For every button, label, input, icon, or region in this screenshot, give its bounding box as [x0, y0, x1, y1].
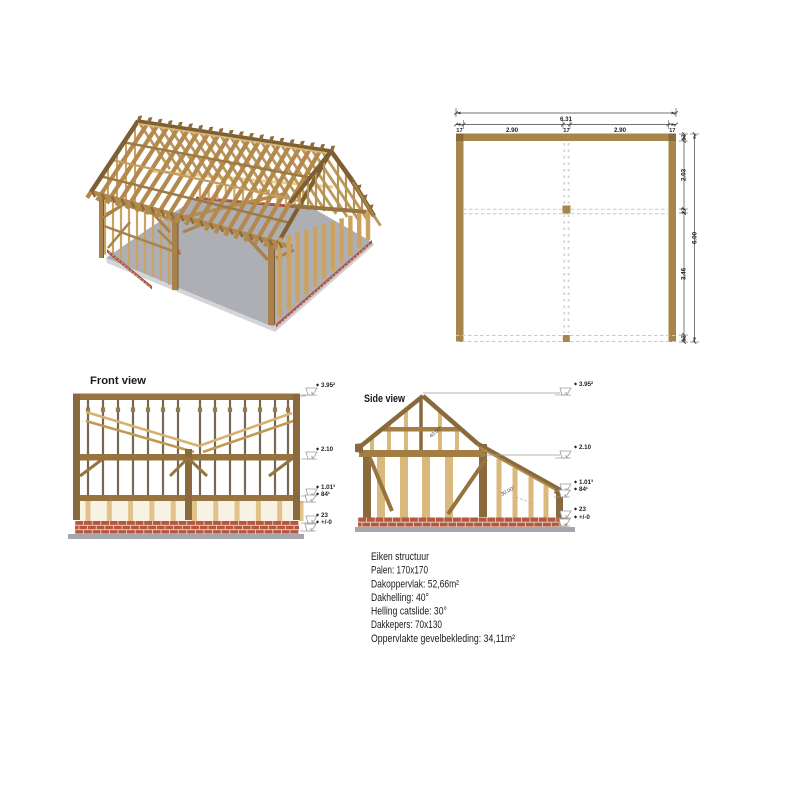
svg-text:2.90: 2.90 — [506, 127, 519, 134]
svg-text:Dakoppervlak: 52,66m²: Dakoppervlak: 52,66m² — [371, 578, 459, 590]
svg-text:6.31: 6.31 — [560, 116, 573, 123]
svg-text:23: 23 — [579, 506, 586, 513]
svg-text:3.95²: 3.95² — [579, 381, 593, 388]
svg-text:+/-0: +/-0 — [321, 519, 332, 526]
svg-text:84¹: 84¹ — [321, 491, 330, 498]
svg-text:Eiken structuur: Eiken structuur — [371, 551, 429, 563]
svg-text:17: 17 — [682, 335, 688, 341]
svg-text:Front view: Front view — [90, 375, 146, 387]
svg-text:2.03: 2.03 — [681, 168, 688, 181]
svg-text:23: 23 — [321, 512, 328, 519]
svg-text:17: 17 — [456, 128, 462, 134]
svg-text:3.46: 3.46 — [681, 267, 688, 280]
svg-text:2.10: 2.10 — [579, 444, 592, 451]
svg-text:1.01³: 1.01³ — [579, 479, 593, 486]
svg-text:17: 17 — [682, 134, 688, 140]
svg-text:17: 17 — [682, 208, 688, 214]
svg-text:Oppervlakte gevelbekleding: 34: Oppervlakte gevelbekleding: 34,11m² — [371, 633, 515, 645]
svg-text:Palen: 170x170: Palen: 170x170 — [371, 565, 428, 577]
svg-text:Side view: Side view — [364, 393, 405, 405]
svg-text:Helling catslide: 30°: Helling catslide: 30° — [371, 606, 447, 618]
svg-text:Dakkepers: 70x130: Dakkepers: 70x130 — [371, 619, 442, 631]
svg-text:1.01³: 1.01³ — [321, 484, 335, 491]
svg-text:2.10: 2.10 — [321, 446, 334, 453]
svg-text:17: 17 — [669, 128, 675, 134]
svg-text:3.95²: 3.95² — [321, 382, 335, 389]
svg-text:Dakhelling: 40°: Dakhelling: 40° — [371, 592, 429, 604]
svg-text:6.00: 6.00 — [692, 231, 699, 244]
svg-text:17: 17 — [563, 128, 569, 134]
svg-text:+/-0: +/-0 — [579, 514, 590, 521]
svg-text:84¹: 84¹ — [579, 486, 588, 493]
svg-text:2.90: 2.90 — [614, 127, 627, 134]
